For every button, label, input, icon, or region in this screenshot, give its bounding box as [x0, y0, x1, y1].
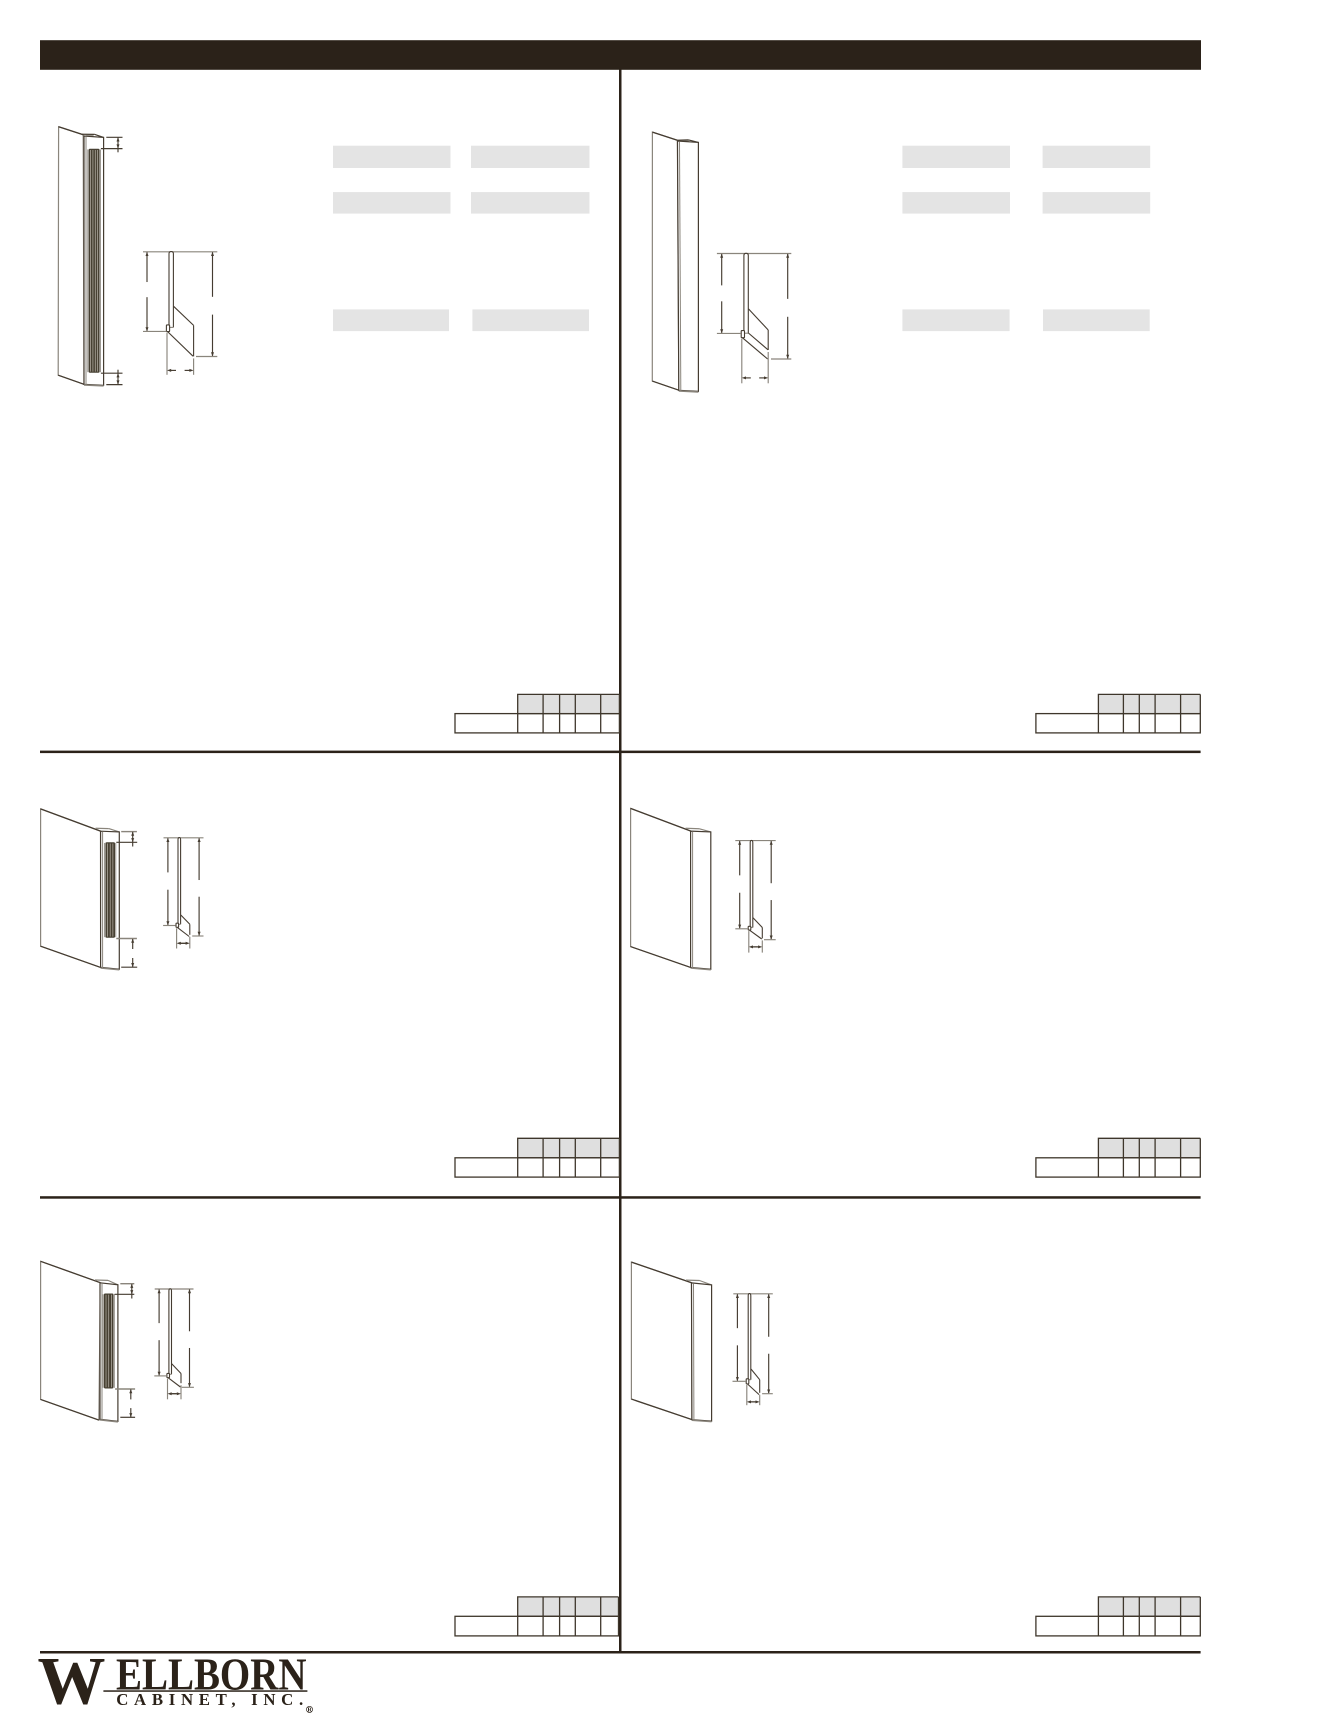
svg-text:CABINET, INC.: CABINET, INC. — [116, 1690, 303, 1709]
svg-text:R: R — [307, 1707, 312, 1714]
svg-text:W: W — [38, 1643, 106, 1719]
